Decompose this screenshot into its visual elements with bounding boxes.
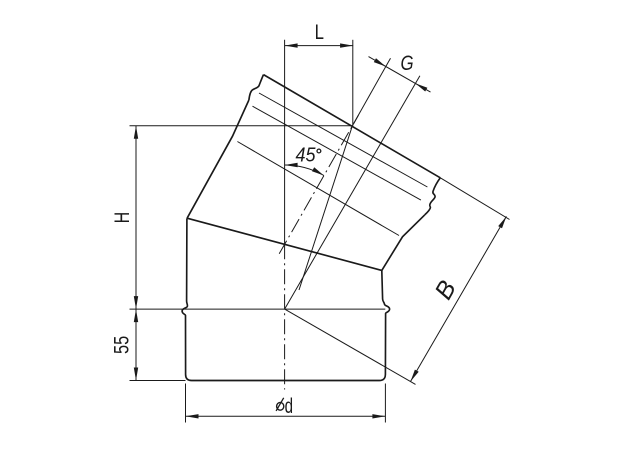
svg-text:H: H bbox=[110, 212, 134, 223]
svg-text:B: B bbox=[429, 276, 462, 304]
svg-text:d: d bbox=[285, 393, 293, 417]
svg-text:L: L bbox=[315, 21, 324, 44]
svg-text:G: G bbox=[400, 53, 413, 76]
svg-text:55: 55 bbox=[110, 336, 133, 354]
svg-text:45: 45 bbox=[295, 145, 315, 167]
